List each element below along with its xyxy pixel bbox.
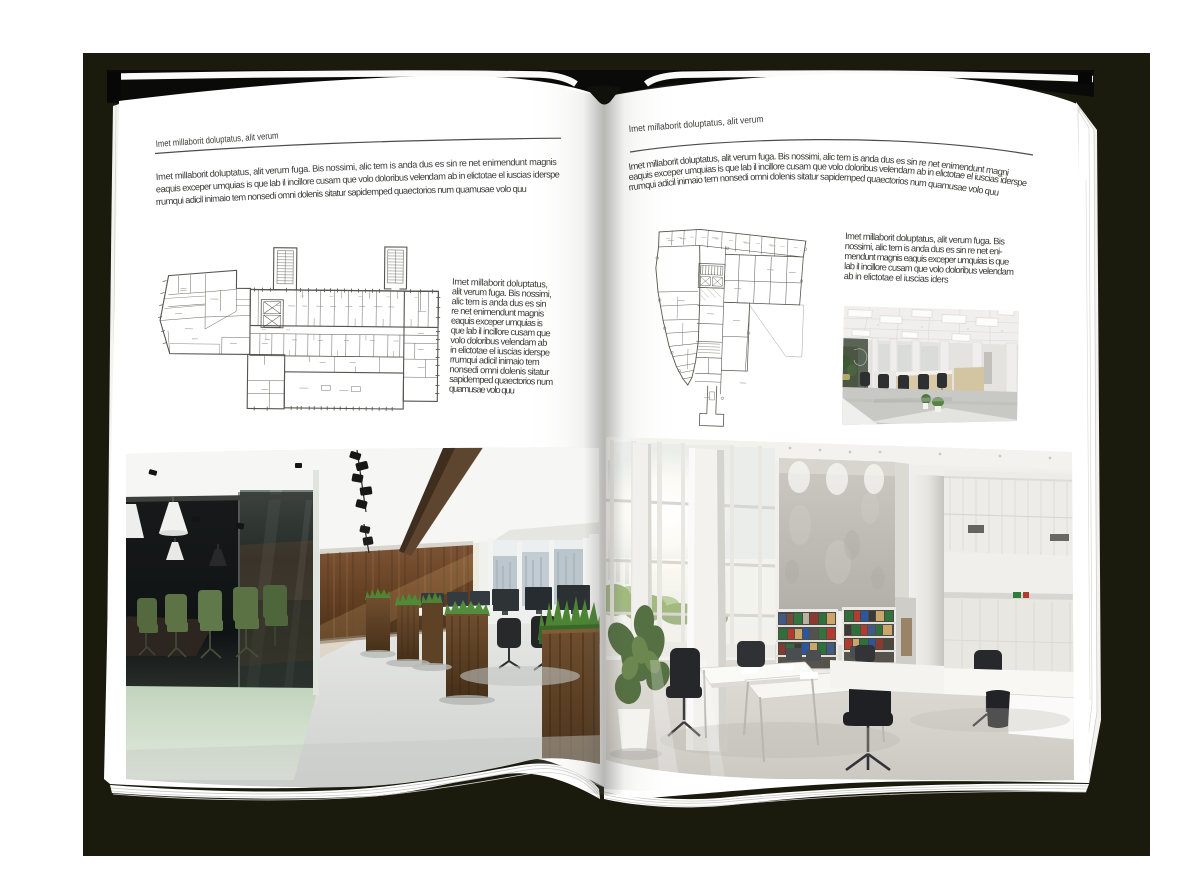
- svg-text:quamusae volo quu: quamusae volo quu: [449, 384, 515, 396]
